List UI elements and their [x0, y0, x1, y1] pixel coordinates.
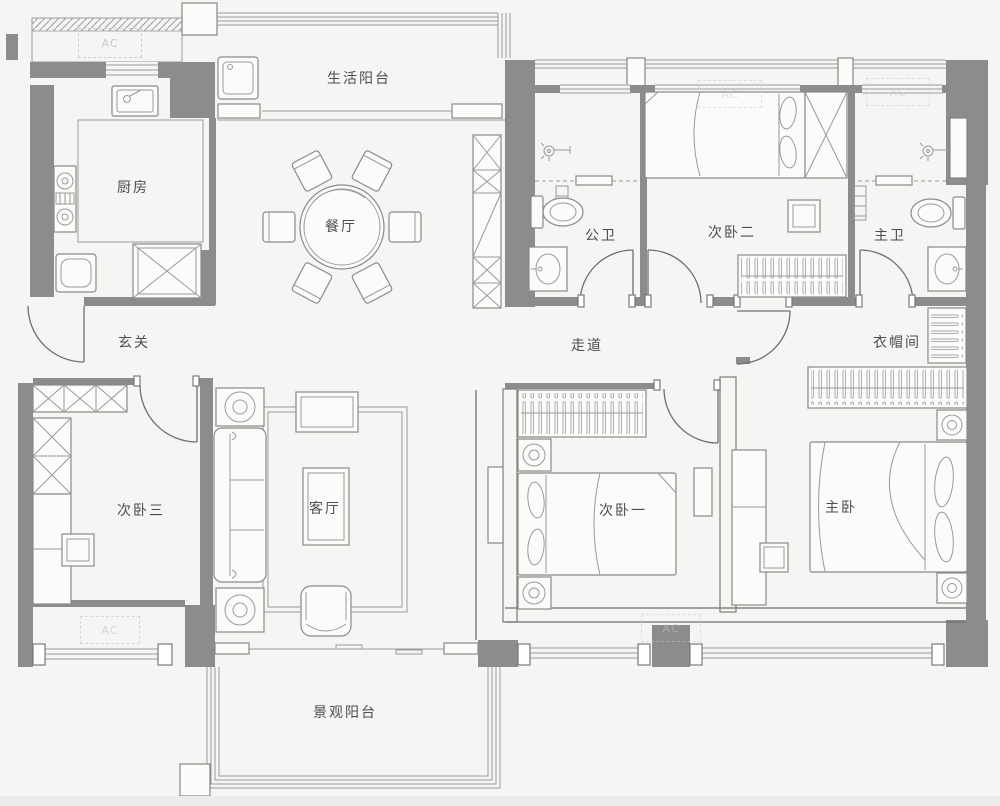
dishwasher: [56, 254, 96, 292]
sink: [529, 247, 567, 291]
wardrobe-bedroom2: [805, 92, 847, 178]
dining-chair: [291, 150, 333, 192]
bedroom1-shelf: [694, 468, 712, 516]
dining-chair: [351, 262, 393, 304]
room-label-living-room: 客厅: [309, 498, 341, 518]
room-label-public-bathroom: 公卫: [585, 225, 617, 245]
room-label-master-bathroom: 主卫: [874, 225, 906, 245]
master-dresser: [732, 450, 766, 605]
nightstand: [518, 439, 551, 471]
dining-chair: [389, 212, 421, 242]
nightstand: [937, 573, 967, 603]
shower-head: [920, 143, 948, 161]
living-niche: [488, 467, 503, 543]
room-label-corridor: 走道: [571, 335, 603, 355]
toilet: [911, 197, 965, 229]
shower-niche: [950, 118, 967, 178]
toilet: [531, 196, 583, 228]
room-label-master-bedroom: 主卧: [825, 497, 857, 517]
wall-bedroom1-west: [503, 389, 517, 622]
master-suite-door: [737, 311, 790, 364]
wardrobe-bedroom1: [518, 390, 646, 437]
master-bathroom-door: [860, 250, 913, 303]
life-balcony-sliding-door: [217, 104, 505, 120]
dining-chair: [351, 150, 393, 192]
dining-chair: [263, 212, 295, 242]
view-balcony-railing: [180, 664, 500, 796]
floor-plan-drawing: [0, 0, 1000, 806]
public-bathroom-fixtures: [529, 143, 638, 291]
bedroom2-stool: [788, 200, 820, 232]
shower-head: [541, 143, 570, 161]
door-jambs: [134, 295, 915, 390]
wardrobe-bedroom2-south: [738, 255, 846, 297]
armchair: [301, 586, 351, 636]
image-edge: [0, 796, 1000, 806]
wardrobe-master-north: [808, 367, 967, 408]
washing-machine: [218, 57, 258, 99]
room-label-view-balcony: 景观阳台: [313, 702, 377, 722]
ac-unit-bedroom3: AC: [80, 616, 140, 644]
storage-cabinet: [33, 418, 71, 494]
dining-chair: [291, 262, 333, 304]
bedroom3-nightstand: [62, 534, 94, 566]
room-label-bedroom-3: 次卧三: [117, 500, 165, 520]
room-label-cloakroom: 衣帽间: [873, 332, 921, 352]
living-room-furniture: [214, 388, 503, 640]
shower-door: [876, 176, 912, 185]
stove: [54, 166, 76, 232]
bedroom2-furniture: [645, 92, 847, 297]
entry-cabinets: [33, 385, 127, 604]
nightstand: [937, 410, 967, 440]
room-label-entry: 玄关: [118, 332, 150, 352]
master-bathroom-fixtures: [854, 118, 967, 291]
bedroom1-door: [664, 389, 718, 443]
bedroom3-door: [140, 385, 197, 442]
shower-door: [576, 176, 612, 185]
pillar: [182, 3, 217, 35]
sink: [928, 247, 966, 291]
ac-unit-bedroom2: AC: [698, 80, 762, 108]
towel-rail: [854, 186, 866, 220]
side-table: [216, 388, 264, 426]
room-label-kitchen: 厨房: [117, 177, 149, 197]
room-label-dining-room: 餐厅: [325, 216, 357, 236]
nightstand: [518, 577, 551, 609]
bedroom2-door: [648, 250, 701, 303]
room-label-bedroom-2: 次卧二: [708, 222, 756, 242]
sofa: [214, 428, 266, 582]
tv-console: [296, 392, 358, 432]
entry-door: [28, 306, 84, 362]
ac-unit-masterbath: AC: [866, 78, 930, 106]
life-balcony-railing: [217, 13, 510, 58]
public-bathroom-door: [580, 250, 633, 303]
wardrobe-cloakroom-east: [928, 308, 966, 363]
floor-plan: 生活阳台 厨房 餐厅 公卫 次卧二 主卫 玄关 走道 衣帽间 次卧三 客厅 次卧…: [0, 0, 1000, 806]
ac-unit-kitchen: AC: [78, 28, 142, 58]
shoe-cabinet: [33, 385, 127, 412]
bed-bedroom1: [518, 473, 676, 575]
room-label-life-balcony: 生活阳台: [327, 68, 391, 88]
side-table: [216, 588, 264, 632]
room-label-bedroom-1: 次卧一: [599, 500, 647, 520]
refrigerator: [133, 244, 201, 298]
ac-unit-bedroom1: AC: [641, 614, 701, 642]
kitchen-sink: [112, 86, 158, 116]
master-stool: [760, 543, 788, 572]
cloakroom-wardrobes: [808, 308, 967, 408]
dining-cabinet: [473, 135, 501, 308]
view-balcony-sliding-door: [215, 643, 478, 654]
